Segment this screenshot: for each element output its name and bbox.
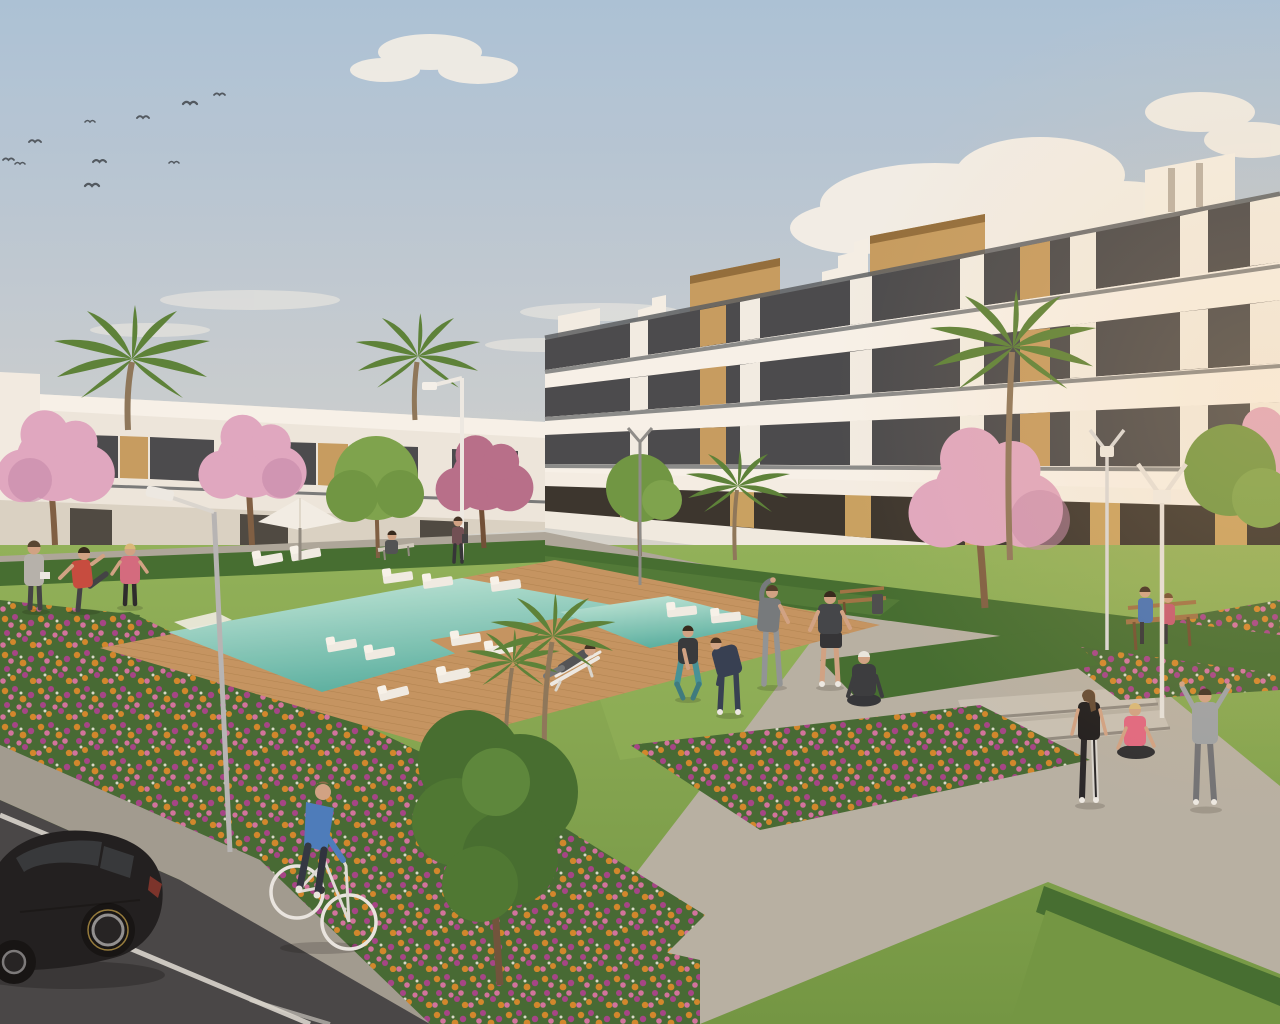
scene-canvas bbox=[0, 0, 1280, 1024]
render-image bbox=[0, 0, 1280, 1024]
warm-light-overlay bbox=[0, 0, 1280, 1024]
